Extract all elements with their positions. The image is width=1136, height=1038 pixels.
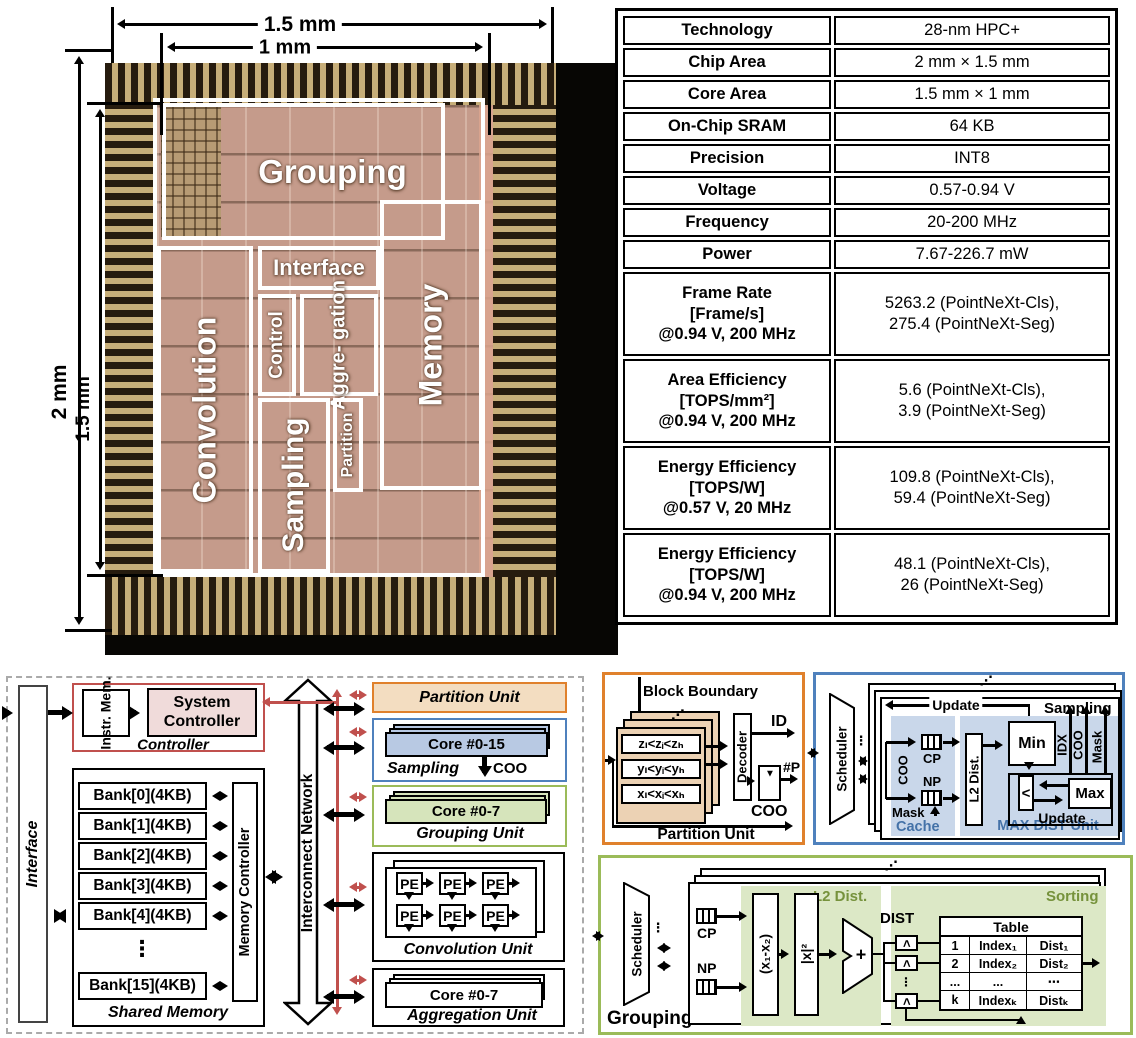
grouping-detail-label: Grouping xyxy=(607,1008,692,1030)
arrow xyxy=(327,706,361,711)
table-cell: Dist₁ xyxy=(1027,937,1081,955)
np-fifo-icon xyxy=(696,979,717,995)
figure-canvas: Grouping Interface Control Aggre- gation… xyxy=(0,0,1136,1038)
arrow xyxy=(494,895,497,897)
cp-label: CP xyxy=(923,751,941,766)
region-interface-label: Interface xyxy=(273,255,365,281)
arrow xyxy=(327,902,361,907)
pe-label: PE xyxy=(486,876,505,892)
id-arrow xyxy=(752,732,792,735)
spec-label: Area Efficiency [TOPS/mm²] @0.94 V, 200 … xyxy=(623,359,831,443)
sorting-label: Sorting xyxy=(1046,888,1099,905)
arrow xyxy=(706,763,725,766)
table-cell: k xyxy=(941,991,970,1009)
arrow xyxy=(327,994,361,999)
table-cell: ⋯ xyxy=(1027,973,1081,991)
spec-value: 2 mm × 1.5 mm xyxy=(834,48,1110,77)
spec-value: 48.1 (PointNeXt-Cls), 26 (PointNeXt-Seg) xyxy=(834,533,1110,617)
partition-detail-label: Partition Unit xyxy=(657,826,754,844)
die-chip: Grouping Interface Control Aggre- gation… xyxy=(105,63,556,635)
spec-label: Core Area xyxy=(623,80,831,109)
table-cell: Distₖ xyxy=(1027,991,1081,1009)
less-than-label: < xyxy=(1022,785,1031,802)
line xyxy=(885,962,895,964)
counter-box: ▼ xyxy=(758,765,781,801)
bank-row: Bank[1](4KB) xyxy=(78,812,207,840)
arrow xyxy=(451,895,454,897)
min-box: Min xyxy=(1008,721,1056,766)
interconnect-label: Interconnect Network xyxy=(299,774,317,932)
coo-arrow xyxy=(482,757,487,773)
line xyxy=(885,1000,895,1002)
line xyxy=(885,942,895,944)
max-label: Max xyxy=(1075,785,1104,802)
dim-label-2mm: 2 mm xyxy=(48,365,72,420)
comparator-box: < xyxy=(895,935,918,951)
dim-label-1p5mm-v: 1.5 mm xyxy=(73,376,95,441)
arrow xyxy=(408,927,411,929)
line xyxy=(612,760,614,827)
arrow xyxy=(781,778,795,781)
spec-value: 1.5 mm × 1 mm xyxy=(834,80,1110,109)
spec-value: 7.67-226.7 mW xyxy=(834,240,1110,269)
spec-table: Technology28-nm HPC+ Chip Area2 mm × 1.5… xyxy=(615,8,1118,625)
red-arrow xyxy=(352,886,364,889)
arrow xyxy=(509,882,517,885)
die-photo: Grouping Interface Control Aggre- gation… xyxy=(105,63,618,655)
scheduler-label: Scheduler xyxy=(630,911,645,976)
dim-label-1p5mm: 1.5 mm xyxy=(258,13,342,37)
arrow xyxy=(215,915,225,918)
comparator-label: < xyxy=(899,939,914,947)
dim-label-1mm: 1 mm xyxy=(253,37,317,60)
instr-mem-label: Instr. Mem. xyxy=(98,676,113,749)
bank-label: Bank[1](4KB) xyxy=(93,817,191,835)
coo-label: COO xyxy=(751,803,787,821)
shared-memory-label: Shared Memory xyxy=(108,1004,228,1022)
id-label: ID xyxy=(771,713,787,731)
aggregation-core-card: Core #0-7 xyxy=(385,982,543,1008)
arrow xyxy=(1042,784,1068,787)
arrow xyxy=(943,797,957,800)
cp-fifo-icon xyxy=(921,734,942,750)
spec-value: 0.57-0.94 V xyxy=(834,176,1110,205)
pe-label: PE xyxy=(443,876,462,892)
sampling-detail: Scheduler ⋮ ⋰ Update Sampling Cache MAX … xyxy=(813,672,1125,845)
bound-row-x: xₗ<xᵢ<xₕ xyxy=(621,784,701,804)
spec-label: On-Chip SRAM xyxy=(623,112,831,141)
bank-label: Bank[2](4KB) xyxy=(93,847,191,865)
bank-row: Bank[3](4KB) xyxy=(78,872,207,900)
card-ellipsis: ⋰ xyxy=(671,707,685,724)
red-arrow xyxy=(352,796,364,799)
update-label: Update xyxy=(929,697,982,713)
subtract-label: (x₁-x₂) xyxy=(758,934,773,974)
sampling-core-card: Core #0-15 xyxy=(385,732,548,757)
arrow xyxy=(886,797,913,800)
counter-triangle-icon: ▼ xyxy=(765,769,775,780)
bank-label: Bank[3](4KB) xyxy=(93,877,191,895)
bound-x-label: xₗ<xᵢ<xₕ xyxy=(637,786,684,802)
arrow xyxy=(717,986,744,989)
arrow xyxy=(706,745,725,748)
arrow xyxy=(810,752,816,755)
line xyxy=(918,1000,939,1002)
arrow xyxy=(943,741,957,744)
spec-label: Precision xyxy=(623,144,831,173)
arrow xyxy=(660,947,668,950)
arrow xyxy=(215,885,225,888)
spec-value: 64 KB xyxy=(834,112,1110,141)
l2-dist-label: L2 Dist. xyxy=(967,756,982,803)
bank-row: Bank[2](4KB) xyxy=(78,842,207,870)
spec-value: 28-nm HPC+ xyxy=(834,16,1110,45)
red-arrow xyxy=(352,979,364,982)
arrow xyxy=(861,778,865,781)
arrow xyxy=(1034,799,1060,802)
min-label: Min xyxy=(1018,735,1046,753)
arrow xyxy=(509,914,517,917)
table-cell: ... xyxy=(970,973,1027,991)
bank-row: Bank[4](4KB) xyxy=(78,902,207,930)
hash-p-label: #P xyxy=(783,759,800,775)
spec-value: 5263.2 (PointNeXt-Cls), 275.4 (PointNeXt… xyxy=(834,272,1110,356)
less-than-box: < xyxy=(1018,775,1034,811)
arrow xyxy=(886,741,913,744)
coo-label: COO xyxy=(493,760,527,777)
mask-label: Mask xyxy=(892,805,925,820)
line xyxy=(918,962,939,964)
arrow xyxy=(779,953,786,956)
arrow xyxy=(408,895,411,897)
arrow xyxy=(215,825,225,828)
scheduler-label: Scheduler xyxy=(835,726,850,791)
line xyxy=(885,742,887,799)
arrow xyxy=(451,927,454,929)
arrow xyxy=(1083,962,1097,965)
table-cell: Dist₂ xyxy=(1027,955,1081,973)
spec-label: Frame Rate [Frame/s] @0.94 V, 200 MHz xyxy=(623,272,831,356)
arrow xyxy=(934,809,937,816)
spec-label: Power xyxy=(623,240,831,269)
comparator-box: < xyxy=(895,955,918,971)
spec-label: Energy Efficiency [TOPS/W] @0.94 V, 200 … xyxy=(623,533,831,617)
pe-label: PE xyxy=(400,908,419,924)
arrow xyxy=(983,744,1000,747)
out-mask-label: Mask xyxy=(1090,731,1105,764)
dim-tick xyxy=(65,629,112,632)
arrow xyxy=(466,882,474,885)
sampling-label: Sampling xyxy=(387,760,459,778)
memory-controller-label: Memory Controller xyxy=(237,828,253,957)
arrow xyxy=(466,914,474,917)
line xyxy=(883,942,885,1002)
card-ellipsis: ⋰ xyxy=(885,858,898,874)
spec-label: Voltage xyxy=(623,176,831,205)
pe-label: PE xyxy=(486,908,505,924)
arch-interface-label: Interface xyxy=(24,821,42,888)
arrow xyxy=(819,953,834,956)
convolution-unit-label: Convolution Unit xyxy=(404,941,533,959)
bank-row: Bank[0](4KB) xyxy=(78,782,207,810)
spec-value: 109.8 (PointNeXt-Cls), 59.4 (PointNeXt-S… xyxy=(834,446,1110,530)
dim-arrow-2mm xyxy=(78,59,81,622)
arrow xyxy=(717,915,744,918)
ellipsis: ⋮ xyxy=(652,920,665,936)
arrow xyxy=(269,874,279,879)
region-grouping-label: Grouping xyxy=(258,153,406,191)
cp-fifo-icon xyxy=(696,908,717,924)
red-arrow xyxy=(352,731,364,734)
comparator-box: < xyxy=(895,993,918,1009)
grouping-detail: Scheduler ⋮ Grouping ⋰ L2 Dist. Sorting … xyxy=(598,855,1133,1035)
dim-tick xyxy=(551,7,554,63)
arrow xyxy=(595,935,601,938)
dist-label: DIST xyxy=(880,910,914,927)
region-aggregation-label: Aggre- gation xyxy=(329,280,350,410)
arrow xyxy=(215,985,225,988)
grouping-core-card: Core #0-7 xyxy=(385,799,547,824)
spec-value: INT8 xyxy=(834,144,1110,173)
table-title: Table xyxy=(941,918,1081,937)
comparator-label: < xyxy=(899,997,914,1005)
np-label: NP xyxy=(697,960,716,976)
bank-row: Bank[15](4KB) xyxy=(78,972,207,1000)
bound-y-label: yₗ<yᵢ<yₕ xyxy=(637,761,684,777)
red-arrow xyxy=(352,694,364,697)
square-label: |x|² xyxy=(798,944,814,964)
sorting-table: Table 1 Index₁ Dist₁ 2 Index₂ Dist₂ ... … xyxy=(939,916,1083,1011)
comparator-ellipsis: ⋮ xyxy=(900,975,912,989)
cache-label: Cache xyxy=(896,819,940,835)
grouping-unit-label: Grouping Unit xyxy=(416,825,524,843)
arrow xyxy=(48,710,69,715)
red-bus xyxy=(336,692,339,1012)
grouping-core-label: Core #0-7 xyxy=(432,803,500,820)
arrow xyxy=(423,914,431,917)
region-partition-label: Partition xyxy=(339,413,357,478)
comparator-label: < xyxy=(899,959,914,967)
arrow xyxy=(660,965,668,968)
partition-unit-box: Partition Unit xyxy=(372,682,567,713)
table-cell: 2 xyxy=(941,955,970,973)
pad-ring-right xyxy=(493,63,556,635)
table-cell: Index₁ xyxy=(970,937,1027,955)
decoder-label: Decoder xyxy=(735,731,750,783)
table-cell: Index₂ xyxy=(970,955,1027,973)
arrow xyxy=(6,710,9,715)
bank-label: Bank[4](4KB) xyxy=(93,907,191,925)
np-label: NP xyxy=(923,774,941,789)
out-idx-label: IDX xyxy=(1055,734,1070,756)
pad-ring-left xyxy=(105,63,157,635)
spec-value: 20-200 MHz xyxy=(834,208,1110,237)
out-coo-label: COO xyxy=(1071,730,1086,760)
table-cell: ... xyxy=(941,973,970,991)
table-cell: 1 xyxy=(941,937,970,955)
arrow xyxy=(59,913,61,918)
spec-label: Chip Area xyxy=(623,48,831,77)
card-ellipsis: ⋰ xyxy=(980,673,993,689)
arrow xyxy=(1028,766,1031,767)
system-controller-box: System Controller xyxy=(147,688,257,737)
arrow xyxy=(861,760,865,763)
spec-label: Technology xyxy=(623,16,831,45)
dim-tick xyxy=(111,7,114,63)
dim-arrow-1mm xyxy=(170,46,480,49)
adder-plus-label: + xyxy=(856,945,867,966)
arrow xyxy=(1020,1019,1023,1021)
aggregation-core-label: Core #0-7 xyxy=(430,987,498,1004)
line xyxy=(918,942,939,944)
bank-label: Bank[0](4KB) xyxy=(93,787,191,805)
table-cell: Indexₖ xyxy=(970,991,1027,1009)
region-control-label: Control xyxy=(266,311,288,379)
arrow xyxy=(327,745,361,750)
bound-row-y: yₗ<yᵢ<yₕ xyxy=(621,759,701,779)
update-inner-label: Update xyxy=(1036,810,1087,826)
region-convolution-label: Convolution xyxy=(187,317,224,504)
arrow xyxy=(751,780,752,783)
arrow xyxy=(215,855,225,858)
coo-in-label: COO xyxy=(896,755,911,785)
l2-shade-label: L2 Dist. xyxy=(813,888,867,905)
arrow xyxy=(327,812,361,817)
spec-label: Energy Efficiency [TOPS/W] @0.57 V, 20 M… xyxy=(623,446,831,530)
pe-label: PE xyxy=(443,908,462,924)
mid-ellipsis: ⋮ xyxy=(714,750,725,763)
region-memory-label: Memory xyxy=(413,284,450,407)
bank-label: Bank[15](4KB) xyxy=(89,977,196,995)
dim-tick xyxy=(488,33,491,135)
arrow xyxy=(494,927,497,929)
line xyxy=(905,1019,1022,1021)
arrow xyxy=(215,795,225,798)
system-controller-label: System Controller xyxy=(164,694,240,731)
arrow xyxy=(423,882,431,885)
region-interface: Interface xyxy=(258,246,380,290)
ellipsis: ⋮ xyxy=(855,733,868,749)
spec-value: 5.6 (PointNeXt-Cls), 3.9 (PointNeXt-Seg) xyxy=(834,359,1110,443)
dim-tick xyxy=(65,49,112,52)
bank-ellipsis: ⋮ xyxy=(131,936,153,962)
partition-unit-label: Partition Unit xyxy=(419,689,519,707)
pe-label: PE xyxy=(400,876,419,892)
region-sampling-label: Sampling xyxy=(277,417,311,552)
partition-detail: Block Boundary ⋰ zₗ<zᵢ<zₕ yₗ<yᵢ<yₕ xₗ<xᵢ… xyxy=(602,672,805,845)
bound-z-label: zₗ<zᵢ<zₕ xyxy=(638,736,683,752)
block-boundary-label: Block Boundary xyxy=(643,683,758,700)
spec-label: Frequency xyxy=(623,208,831,237)
pad-ring-bottom xyxy=(105,577,556,635)
bound-row-z: zₗ<zᵢ<zₕ xyxy=(621,734,701,754)
arrow xyxy=(130,710,136,715)
controller-label: Controller xyxy=(137,737,209,754)
max-box: Max xyxy=(1068,778,1112,809)
aggregation-unit-label: Aggregation Unit xyxy=(407,1007,537,1025)
dim-arrow-1p5mm-v xyxy=(99,112,102,567)
cp-label: CP xyxy=(697,925,716,941)
sampling-core-label: Core #0-15 xyxy=(428,736,505,753)
